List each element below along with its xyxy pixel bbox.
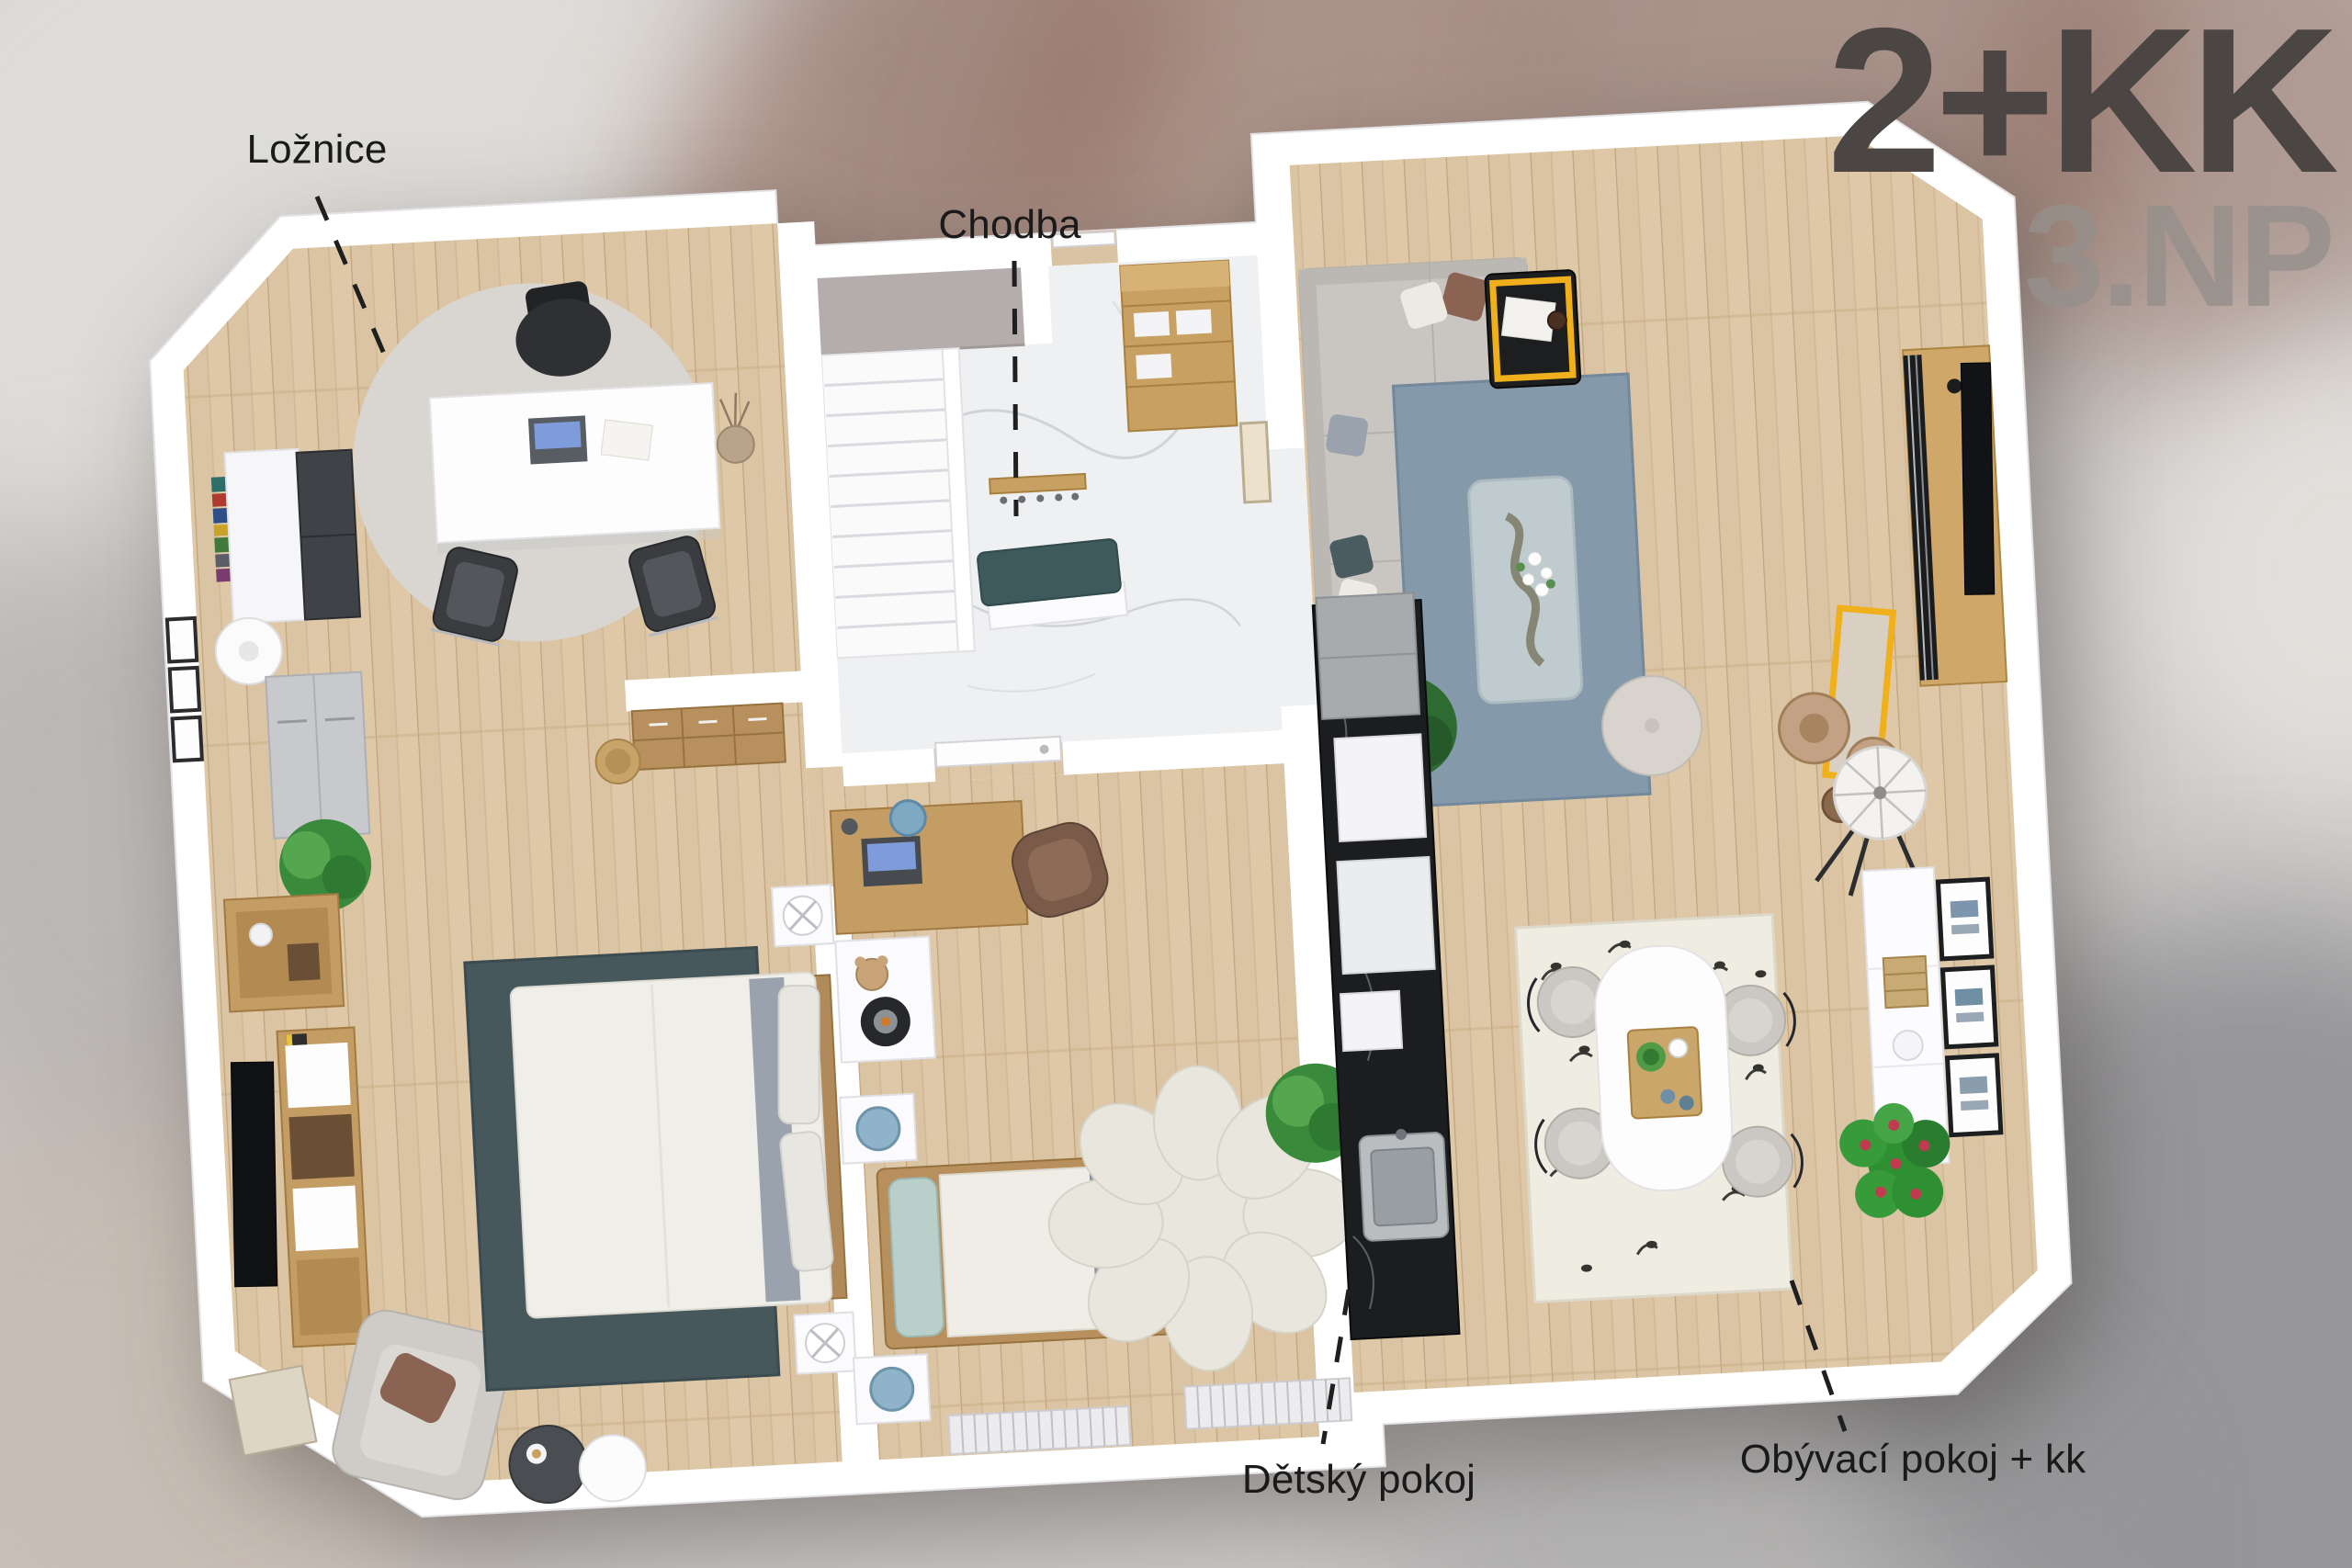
hall-bench [977, 538, 1127, 630]
floor-picture [230, 1366, 317, 1456]
room-label-bedroom: Ložnice [246, 127, 387, 173]
radiator-right [1184, 1378, 1351, 1428]
shoe-rack [1120, 260, 1237, 431]
gray-cabinet [266, 672, 369, 839]
staircase [821, 348, 975, 658]
kids-door [933, 737, 1064, 782]
layout-type-text: 2+KK [1826, 9, 2332, 191]
floor-plan-poster: Ložnice Chodba Dětský pokoj Obývací poko… [0, 0, 2352, 1568]
wardrobe [224, 446, 360, 624]
nightstand-top [772, 885, 833, 946]
picture-frames [1938, 879, 2000, 1134]
ceiling-light [889, 800, 926, 837]
yellow-side-table [1485, 270, 1580, 389]
leaning-tv [1961, 363, 1994, 595]
sink [1359, 1127, 1449, 1242]
basket [594, 739, 640, 784]
room-label-hallway: Chodba [938, 202, 1080, 248]
tv-sideboard [277, 1027, 370, 1347]
desk [430, 383, 720, 543]
kitchen-cabinet [1334, 734, 1426, 841]
hall-wall-frame [1240, 423, 1270, 502]
wall-shelf [224, 894, 344, 1011]
radiator-left [948, 1406, 1130, 1454]
papers [601, 420, 652, 460]
wall-void-stub [1021, 266, 1052, 344]
stairwell-void [817, 267, 1024, 355]
kitchen-cabinet [1337, 857, 1434, 974]
coffee-table [1468, 476, 1583, 704]
dining-table [1592, 942, 1736, 1193]
floor-number-text: 3.NP [1826, 193, 2332, 321]
wall-frames [167, 618, 202, 761]
tv [231, 1062, 277, 1287]
room-label-living-room: Obývací pokoj + kk [1740, 1437, 2086, 1483]
kids-nightstand-top [840, 1094, 917, 1164]
double-bed [510, 971, 846, 1318]
toy-shelf [835, 937, 935, 1063]
kitchen-cabinet [1340, 991, 1402, 1051]
room-label-kids-room: Dětský pokoj [1242, 1457, 1476, 1503]
layout-badge: 2+KK 3.NP [1826, 9, 2332, 321]
kids-desk [831, 801, 1028, 934]
laptop [528, 415, 588, 464]
dresser [632, 704, 786, 770]
nightstand-bottom [794, 1312, 855, 1373]
kids-nightstand-bottom [854, 1354, 931, 1424]
